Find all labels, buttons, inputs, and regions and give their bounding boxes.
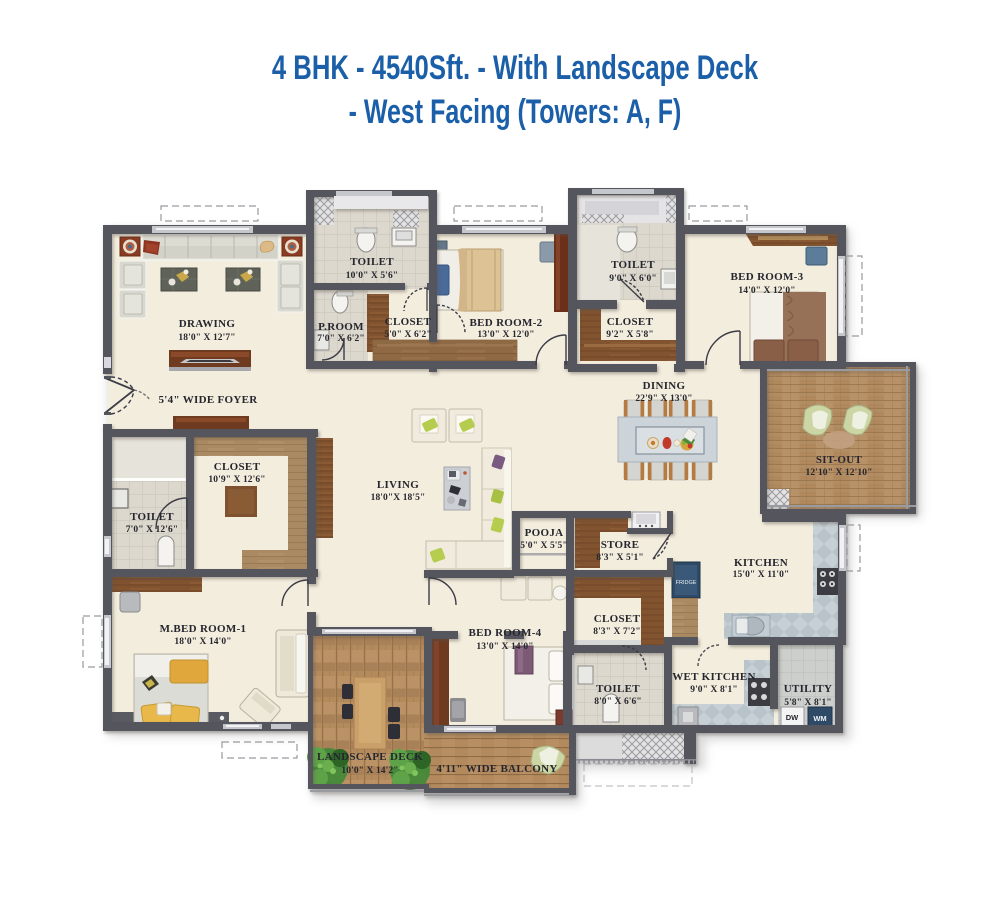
svg-text:22'9" X 13'0": 22'9" X 13'0" [635,394,692,404]
svg-text:CLOSET: CLOSET [214,461,261,473]
svg-text:8'3" X 7'2": 8'3" X 7'2" [593,627,641,637]
svg-text:4'11" WIDE BALCONY: 4'11" WIDE BALCONY [436,763,557,775]
svg-text:STORE: STORE [601,539,640,551]
svg-text:LIVING: LIVING [377,479,419,491]
svg-text:BED ROOM-3: BED ROOM-3 [731,271,804,283]
svg-text:7'0" X 12'6": 7'0" X 12'6" [126,525,178,535]
svg-text:TOILET: TOILET [611,259,655,271]
svg-text:TOILET: TOILET [596,683,640,695]
svg-text:M.BED ROOM-1: M.BED ROOM-1 [160,623,247,635]
svg-text:13'0" X 12'0": 13'0" X 12'0" [477,330,534,340]
svg-text:BED ROOM-4: BED ROOM-4 [469,627,542,639]
svg-text:KITCHEN: KITCHEN [734,557,788,569]
svg-text:9'0" X 6'0": 9'0" X 6'0" [609,274,657,284]
svg-text:DRAWING: DRAWING [179,318,236,330]
svg-text:10'9" X 12'6": 10'9" X 12'6" [208,475,265,485]
svg-text:WET KITCHEN: WET KITCHEN [672,671,755,683]
svg-text:P.ROOM: P.ROOM [318,321,364,333]
svg-text:8'0" X 6'6": 8'0" X 6'6" [594,697,642,707]
svg-text:5'0" X 5'5": 5'0" X 5'5" [520,541,568,551]
svg-text:5'4" WIDE FOYER: 5'4" WIDE FOYER [158,394,258,406]
svg-text:9'2" X 5'8": 9'2" X 5'8" [606,330,654,340]
svg-text:7'0" X 6'2": 7'0" X 6'2" [317,334,365,344]
svg-text:CLOSET: CLOSET [594,613,641,625]
svg-text:12'10" X 12'10": 12'10" X 12'10" [806,468,873,478]
svg-text:5'0" X 6'2": 5'0" X 6'2" [384,330,432,340]
svg-text:18'0" X 12'7": 18'0" X 12'7" [178,333,235,343]
svg-text:DW: DW [786,713,799,722]
svg-text:TOILET: TOILET [350,256,394,268]
svg-text:POOJA: POOJA [525,527,564,539]
svg-text:18'0" X 14'0": 18'0" X 14'0" [174,637,231,647]
svg-text:LANDSCAPE DECK: LANDSCAPE DECK [317,751,423,763]
svg-text:TOILET: TOILET [130,511,174,523]
svg-text:14'0" X 12'0": 14'0" X 12'0" [738,286,795,296]
svg-text:15'0" X 11'0": 15'0" X 11'0" [733,570,790,580]
svg-text:FRIDGE: FRIDGE [676,580,697,586]
svg-text:UTILITY: UTILITY [784,683,833,695]
svg-text:18'0"X 18'5": 18'0"X 18'5" [371,493,426,503]
svg-text:10'0" X 14'2": 10'0" X 14'2" [341,766,398,776]
svg-text:9'0" X 8'1": 9'0" X 8'1" [690,685,738,695]
svg-text:CLOSET: CLOSET [607,316,654,328]
svg-text:5'8" X 8'1": 5'8" X 8'1" [784,698,832,708]
svg-text:13'0" X 14'0": 13'0" X 14'0" [476,642,533,652]
svg-text:SIT-OUT: SIT-OUT [816,454,863,466]
svg-text:WM: WM [813,714,826,723]
svg-text:CLOSET: CLOSET [385,316,432,328]
svg-text:8'3" X 5'1": 8'3" X 5'1" [596,553,644,563]
svg-text:BED ROOM-2: BED ROOM-2 [470,317,543,329]
svg-text:10'0" X 5'6": 10'0" X 5'6" [346,271,398,281]
svg-text:DINING: DINING [643,380,686,392]
